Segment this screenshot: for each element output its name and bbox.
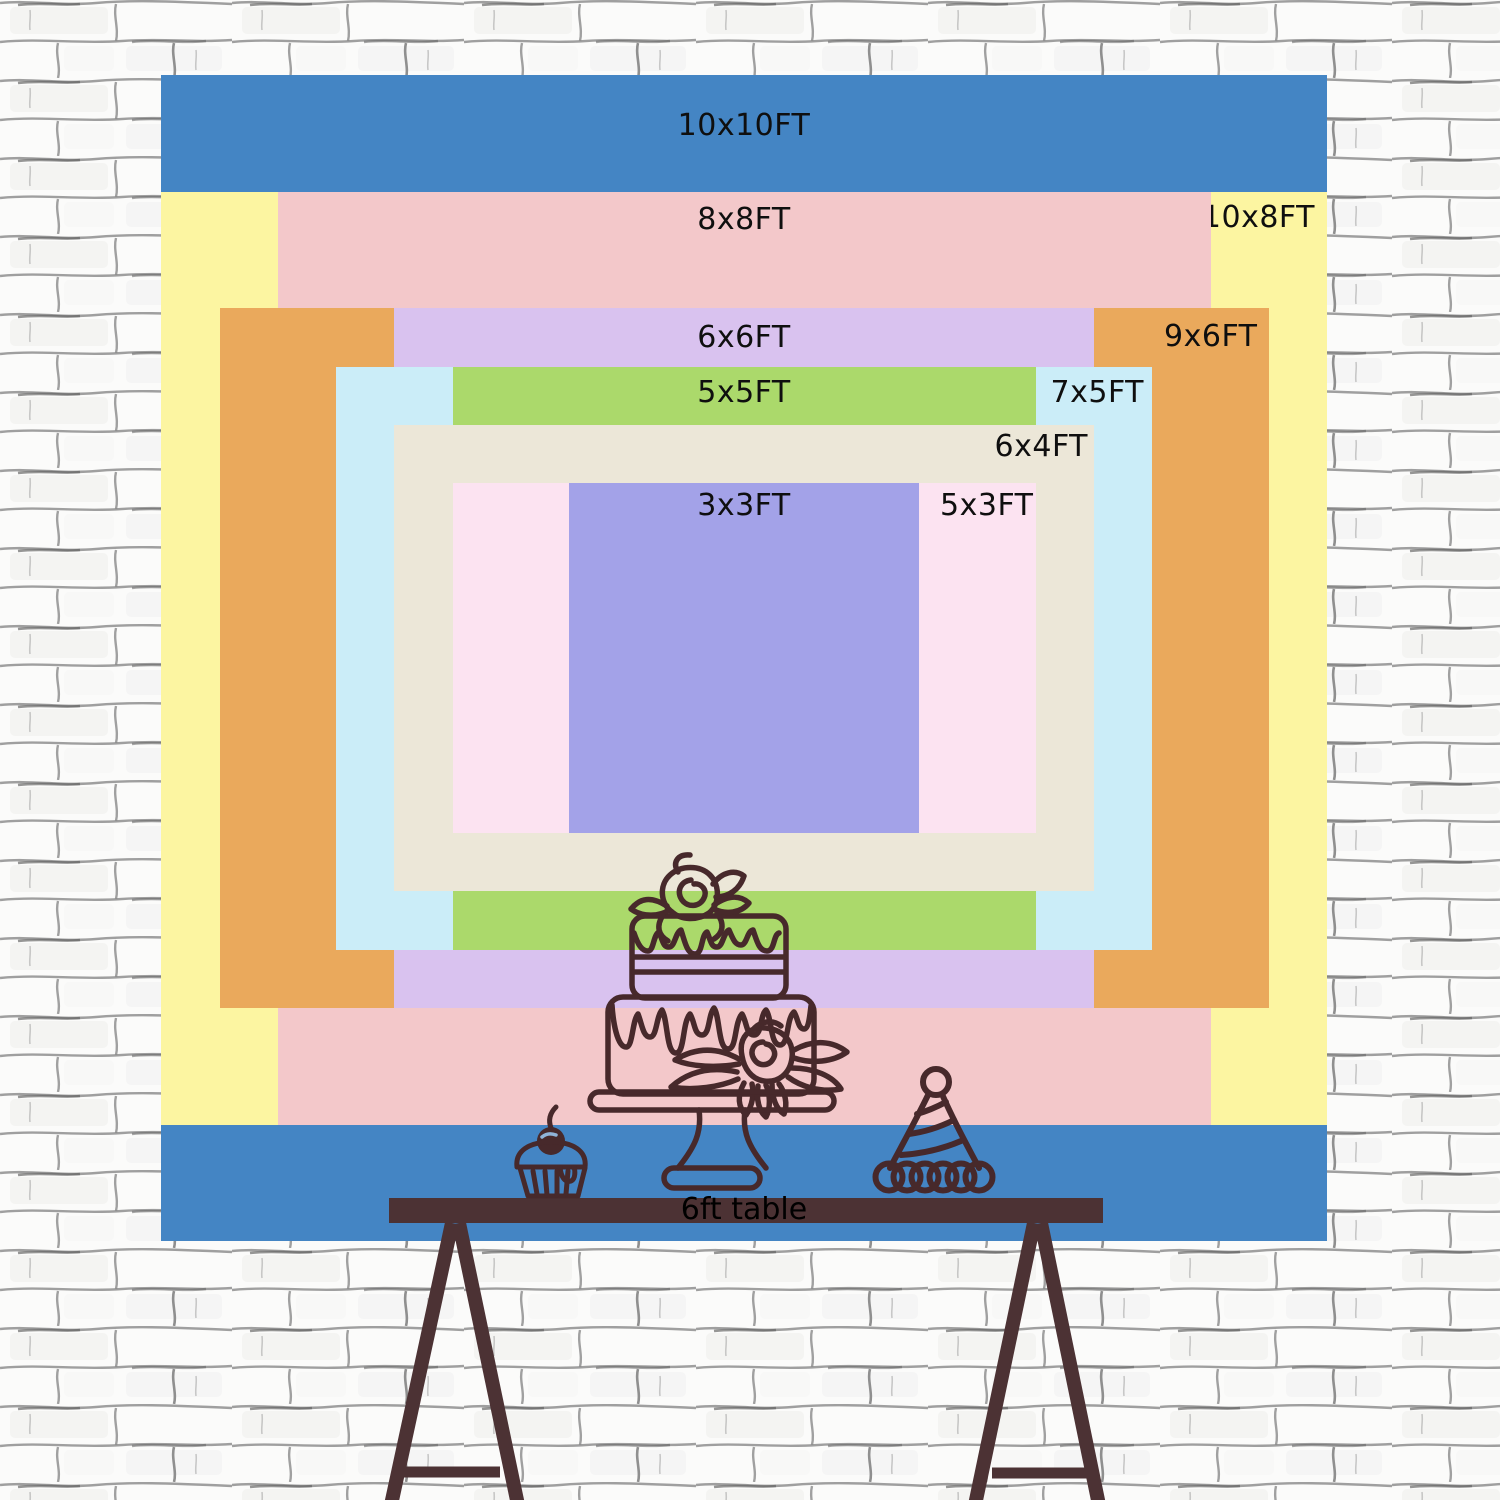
- size-label-6x4: 6x4FT: [995, 431, 1088, 463]
- size-label-7x5: 7x5FT: [1051, 377, 1144, 409]
- backdrop-size-stack: 10x10FT10x8FT8x8FT9x6FT6x6FT7x5FT5x5FT6x…: [0, 0, 1500, 1500]
- size-label-3x3: 3x3FT: [697, 490, 790, 522]
- size-label-5x5: 5x5FT: [697, 377, 790, 409]
- size-label-8x8: 8x8FT: [697, 204, 790, 236]
- size-label-10x8: 10x8FT: [1202, 202, 1315, 234]
- size-label-10x10: 10x10FT: [678, 110, 811, 142]
- size-label-5x3: 5x3FT: [940, 490, 1033, 522]
- size-chart-stage: 10x10FT10x8FT8x8FT9x6FT6x6FT7x5FT5x5FT6x…: [0, 0, 1500, 1500]
- size-label-9x6: 9x6FT: [1164, 321, 1257, 353]
- table-size-label: 6ft table: [594, 1192, 894, 1227]
- size-rect-3x3: 3x3FT: [569, 483, 919, 833]
- size-label-6x6: 6x6FT: [697, 322, 790, 354]
